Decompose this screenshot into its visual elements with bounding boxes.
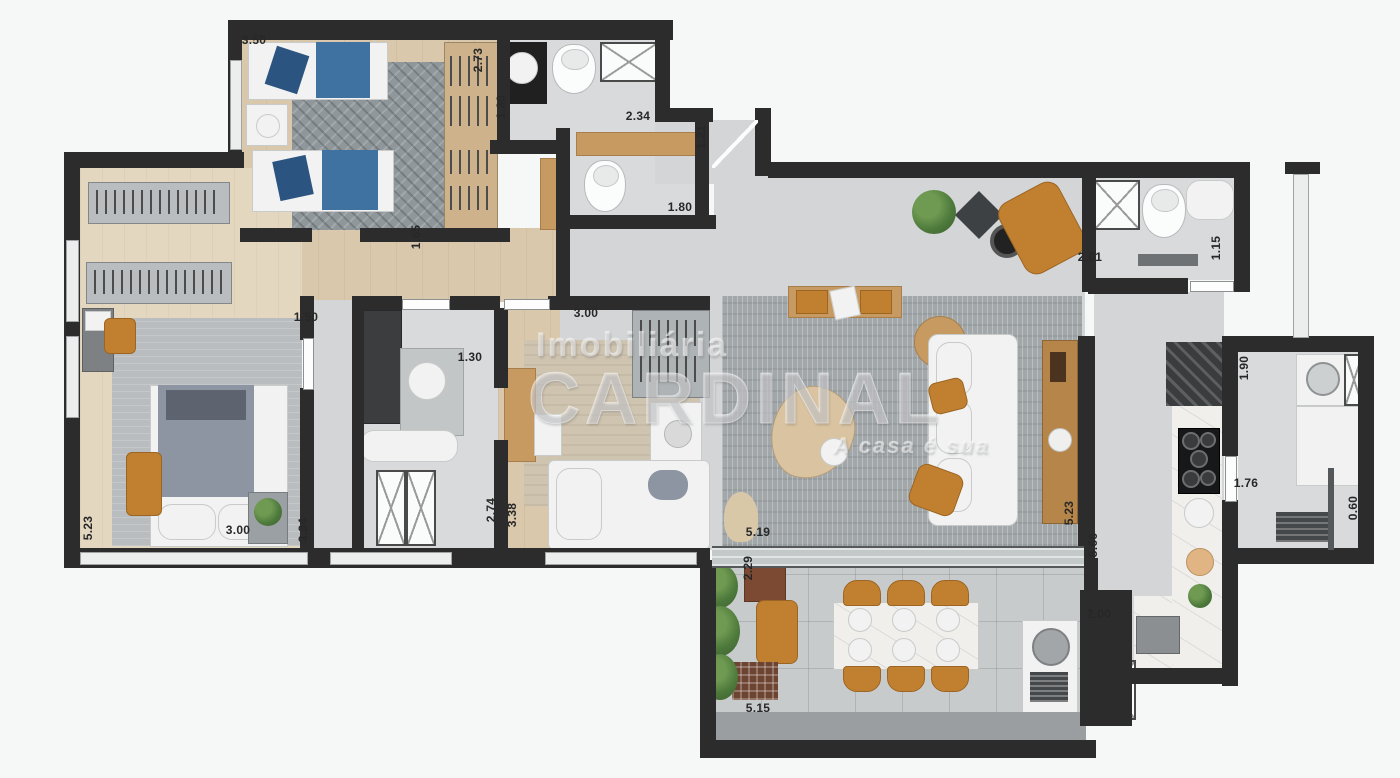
dining-chair: [843, 580, 881, 606]
twin-bed-2-blanket: [322, 150, 378, 210]
wall: [700, 560, 716, 758]
burner: [1190, 450, 1208, 468]
bath3-shaft: [376, 470, 406, 546]
plant: [1188, 584, 1212, 608]
dining-chair: [887, 580, 925, 606]
wardrobe-hangers: [450, 150, 490, 174]
table-tray: [820, 438, 848, 466]
wall: [768, 162, 1248, 178]
wall: [360, 228, 510, 242]
console-cushion: [860, 290, 892, 314]
wall: [1222, 500, 1238, 686]
window: [230, 60, 242, 150]
wall: [1234, 336, 1374, 352]
door-leaf: [1190, 281, 1234, 292]
dimension-label: 5.15: [740, 701, 776, 715]
dimension-label: 1.76: [1228, 476, 1264, 490]
bath3-cabinet: [362, 310, 402, 424]
master-bed-fold: [166, 390, 246, 420]
bathtr-shower: [1094, 180, 1140, 230]
door-leaf: [303, 338, 314, 390]
door-leaf: [402, 299, 450, 310]
wall: [1088, 278, 1188, 294]
window: [545, 552, 697, 565]
office-chair: [534, 414, 562, 456]
burner: [1200, 432, 1216, 448]
dining-chair: [931, 666, 969, 692]
dimension-label: 2.74: [484, 492, 498, 528]
wall: [1082, 162, 1096, 292]
place-setting: [892, 608, 916, 632]
window: [330, 552, 452, 565]
wall: [1238, 548, 1374, 564]
bbq-vent: [1030, 672, 1068, 702]
place-setting: [848, 638, 872, 662]
bathtr-sink: [1186, 180, 1234, 220]
wall: [1285, 162, 1320, 174]
burner: [1182, 432, 1200, 450]
wardrobe-hangers: [450, 186, 490, 210]
dimension-label: 0.60: [1346, 490, 1360, 526]
terrace-parapet: [716, 712, 1086, 740]
bath1-sink: [506, 52, 538, 84]
wall: [497, 20, 510, 154]
office-desk: [504, 368, 536, 462]
wall: [1222, 336, 1238, 456]
burner: [1200, 470, 1216, 486]
dimension-label: 3.00: [220, 523, 256, 537]
service-divider: [1328, 468, 1334, 550]
terrace-bench: [756, 600, 798, 664]
dimension-label: 3.34: [296, 512, 310, 548]
dimension-label: 2.01: [1072, 250, 1108, 264]
bowl: [1048, 428, 1072, 452]
dimension-label: 1.21: [694, 119, 708, 155]
bathtr-toilet: [1142, 184, 1186, 238]
dimension-label: 3.50: [236, 33, 272, 47]
bath3-shaft: [406, 470, 436, 546]
dimension-label: 5.23: [81, 510, 95, 546]
place-setting: [936, 608, 960, 632]
grill-appliance: [1276, 512, 1334, 542]
office-wardrobe-hangers: [640, 320, 700, 346]
bath2-shelf: [576, 132, 700, 156]
dimension-label: 5.66: [1086, 527, 1100, 563]
office-pillow: [648, 470, 688, 500]
master-chair: [104, 318, 136, 354]
wall: [352, 296, 364, 558]
twin-bed-1-blanket: [316, 42, 370, 98]
wall: [700, 740, 1096, 758]
sideboard-bottles: [1050, 352, 1066, 382]
window: [80, 552, 308, 565]
bath2-toilet: [584, 160, 626, 212]
dimension-label: 3.00: [568, 306, 604, 320]
place-setting: [848, 608, 872, 632]
dimension-label: 1.90: [1237, 350, 1251, 386]
wall: [450, 296, 500, 310]
wall: [1358, 336, 1374, 562]
dimension-label: 1.80: [662, 200, 698, 214]
sliding-door: [712, 546, 1084, 568]
washing-machine-door: [1306, 362, 1340, 396]
window: [66, 240, 79, 322]
bathtr-bench: [1138, 254, 1198, 266]
plant: [254, 498, 282, 526]
dimension-label: 2.73: [471, 42, 485, 78]
dimension-label: 1.65: [409, 219, 423, 255]
burner: [1182, 470, 1200, 488]
office-wardrobe-hangers: [640, 356, 700, 382]
wardrobe-hangers: [450, 96, 490, 126]
entry-door-leaf: [712, 120, 758, 168]
door-leaf: [504, 299, 550, 310]
dining-chair: [843, 666, 881, 692]
wall: [655, 20, 670, 122]
dimension-label: 2.34: [620, 109, 656, 123]
bath3-bathtub: [360, 430, 458, 462]
office-sofa-cushion: [556, 468, 602, 540]
cutting-board: [1186, 548, 1214, 576]
window: [66, 336, 79, 418]
dimension-label: 2.29: [741, 550, 755, 586]
dimension-label: 3.38: [505, 497, 519, 533]
dimension-label: 1.15: [1209, 230, 1223, 266]
wall: [494, 308, 508, 388]
floor-plan: Imobiliária CARDINAL A casa é sua 3.502.…: [0, 0, 1400, 778]
dimension-label: 5.23: [1062, 495, 1076, 531]
place-setting: [892, 638, 916, 662]
dimension-label: 5.19: [740, 525, 776, 539]
console-cushion: [796, 290, 828, 314]
bath1-shower: [600, 42, 658, 82]
lamp: [256, 114, 280, 138]
clothes-rack-2-hangers: [94, 270, 222, 294]
dimension-label: 1.50: [288, 310, 324, 324]
master-pillow: [158, 504, 216, 540]
wall: [64, 152, 244, 168]
window: [1293, 174, 1309, 338]
dimension-label: 2.00: [1081, 607, 1117, 621]
bbq-top: [1032, 628, 1070, 666]
dining-chair: [887, 666, 925, 692]
wall: [556, 215, 716, 229]
dimension-label: 1.30: [452, 350, 488, 364]
plant: [912, 190, 956, 234]
planter-lattice: [732, 662, 778, 700]
kitchen-sink-bottom: [1136, 616, 1180, 654]
master-bench: [126, 452, 162, 516]
dining-chair: [931, 580, 969, 606]
wall: [1234, 162, 1250, 292]
kitchen-hood: [1166, 342, 1224, 406]
dimension-label: 1.30: [494, 89, 508, 125]
wall: [228, 20, 673, 40]
wall: [240, 228, 312, 242]
bath1-toilet: [552, 44, 596, 94]
office-basin: [664, 420, 692, 448]
place-setting: [936, 638, 960, 662]
kitchen-sink-round: [1184, 498, 1214, 528]
bath3-sink: [408, 362, 446, 400]
clothes-rack-1-hangers: [96, 190, 220, 214]
